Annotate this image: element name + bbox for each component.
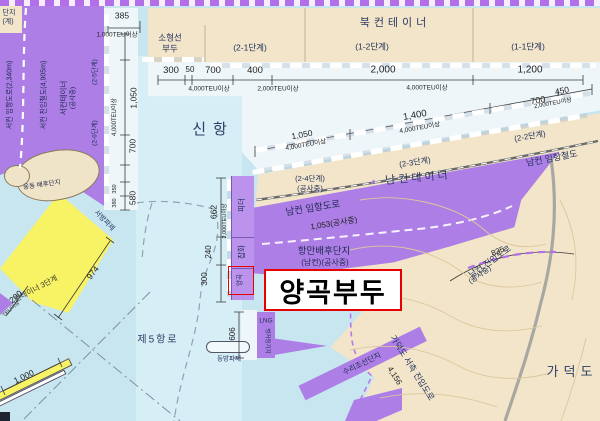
dim-top-50: 50 [186, 66, 195, 74]
lng-label-2: 벙커링기지 [263, 328, 269, 353]
stage-2-4: (2-4단계) [295, 175, 325, 183]
dim-606: 606 [229, 327, 237, 340]
grain-pier-title-box: 양곡부두 [264, 269, 402, 311]
stage-2-1: (2-1단계) [233, 44, 267, 53]
stage-1-1: (1-1단계) [511, 43, 545, 52]
berth-feeder: 피더 [238, 198, 246, 212]
grain-berth-highlight-box [228, 266, 254, 295]
north-land [148, 8, 600, 62]
lng-label: LNG [259, 319, 272, 326]
teu-1000: 1,000TEU이상 [96, 33, 137, 40]
road-seocon-road: 서컨 임항도로(2,340m) [6, 61, 13, 130]
dim-east-300: 300 [201, 272, 209, 285]
region-seocon: 서컨테이너 [60, 81, 68, 116]
region-bukcon: 북컨테이너 [360, 18, 431, 30]
east-breakwater-pier [206, 341, 250, 353]
teu-4000-a: 4,000TEU이상 [188, 87, 229, 94]
corner-structure [0, 412, 10, 421]
teu-2000-c: 2,000TEU이상 [223, 204, 229, 239]
berth-general-cargo: 잡화 [238, 245, 246, 259]
small-craft-berth-dashes [142, 57, 204, 62]
dim-top-1200: 1,200 [517, 66, 542, 77]
pier-small-craft-1: 소형선 [158, 34, 181, 43]
hinterland-label-1: 항만배후단지 [298, 247, 350, 257]
stage-2-5: (2-5단계) [93, 59, 100, 85]
berth-divider [232, 237, 254, 238]
dim-east-662: 662 [210, 205, 219, 219]
dim-top-2000: 2,000 [370, 66, 395, 77]
route-5-label: 제5항로 [137, 336, 178, 347]
dim-west-700: 700 [129, 139, 138, 153]
port-development-map: 단지 (계) 북컨테이너 (1-2단계) (1-1단계) 소형선 부두 (2-1… [0, 0, 600, 421]
stage-1-2: (1-2단계) [355, 43, 389, 52]
stage-2-6: (2-6단계) [93, 120, 100, 146]
teu-4000-b: 4,000TEU이상 [406, 86, 447, 93]
road-seocon-rail: 서컨 진입철도(4,905m) [40, 61, 47, 130]
dim-west-385: 385 [115, 12, 129, 21]
hinterland-label-2: (남컨)(공사중) [301, 259, 348, 267]
stage-2-4-status: (공사중) [297, 185, 323, 193]
dim-west-350: 350 [113, 184, 119, 193]
grain-pier-title: 양곡부두 [279, 271, 386, 310]
teu-4000-e: 4,000TEU이상 [112, 98, 118, 136]
dim-west-580: 580 [129, 191, 138, 205]
dim-top-300: 300 [163, 66, 179, 76]
region-shinhang: 신항 [192, 122, 234, 138]
dim-east-240: 240 [205, 245, 213, 258]
west-quay-berth-dashes [104, 14, 109, 202]
east-breakwater-label: 동방파제 [217, 357, 241, 364]
region-gadeokdo: 가덕도 [547, 365, 598, 379]
teu-2000-a: 2,000TEU이상 [257, 87, 298, 94]
dim-west-380: 380 [113, 198, 119, 207]
boundary-dash-strip [0, 0, 600, 6]
dim-west-1050: 1,050 [130, 87, 139, 108]
dim-top-700: 700 [205, 66, 221, 76]
region-seocon-status: (공사중) [71, 87, 78, 109]
pier-small-craft-2: 부두 [162, 45, 178, 54]
dim-top-400: 400 [247, 66, 263, 76]
corner-label-2: (계) [2, 18, 13, 25]
corner-label-1: 단지 [3, 9, 16, 16]
